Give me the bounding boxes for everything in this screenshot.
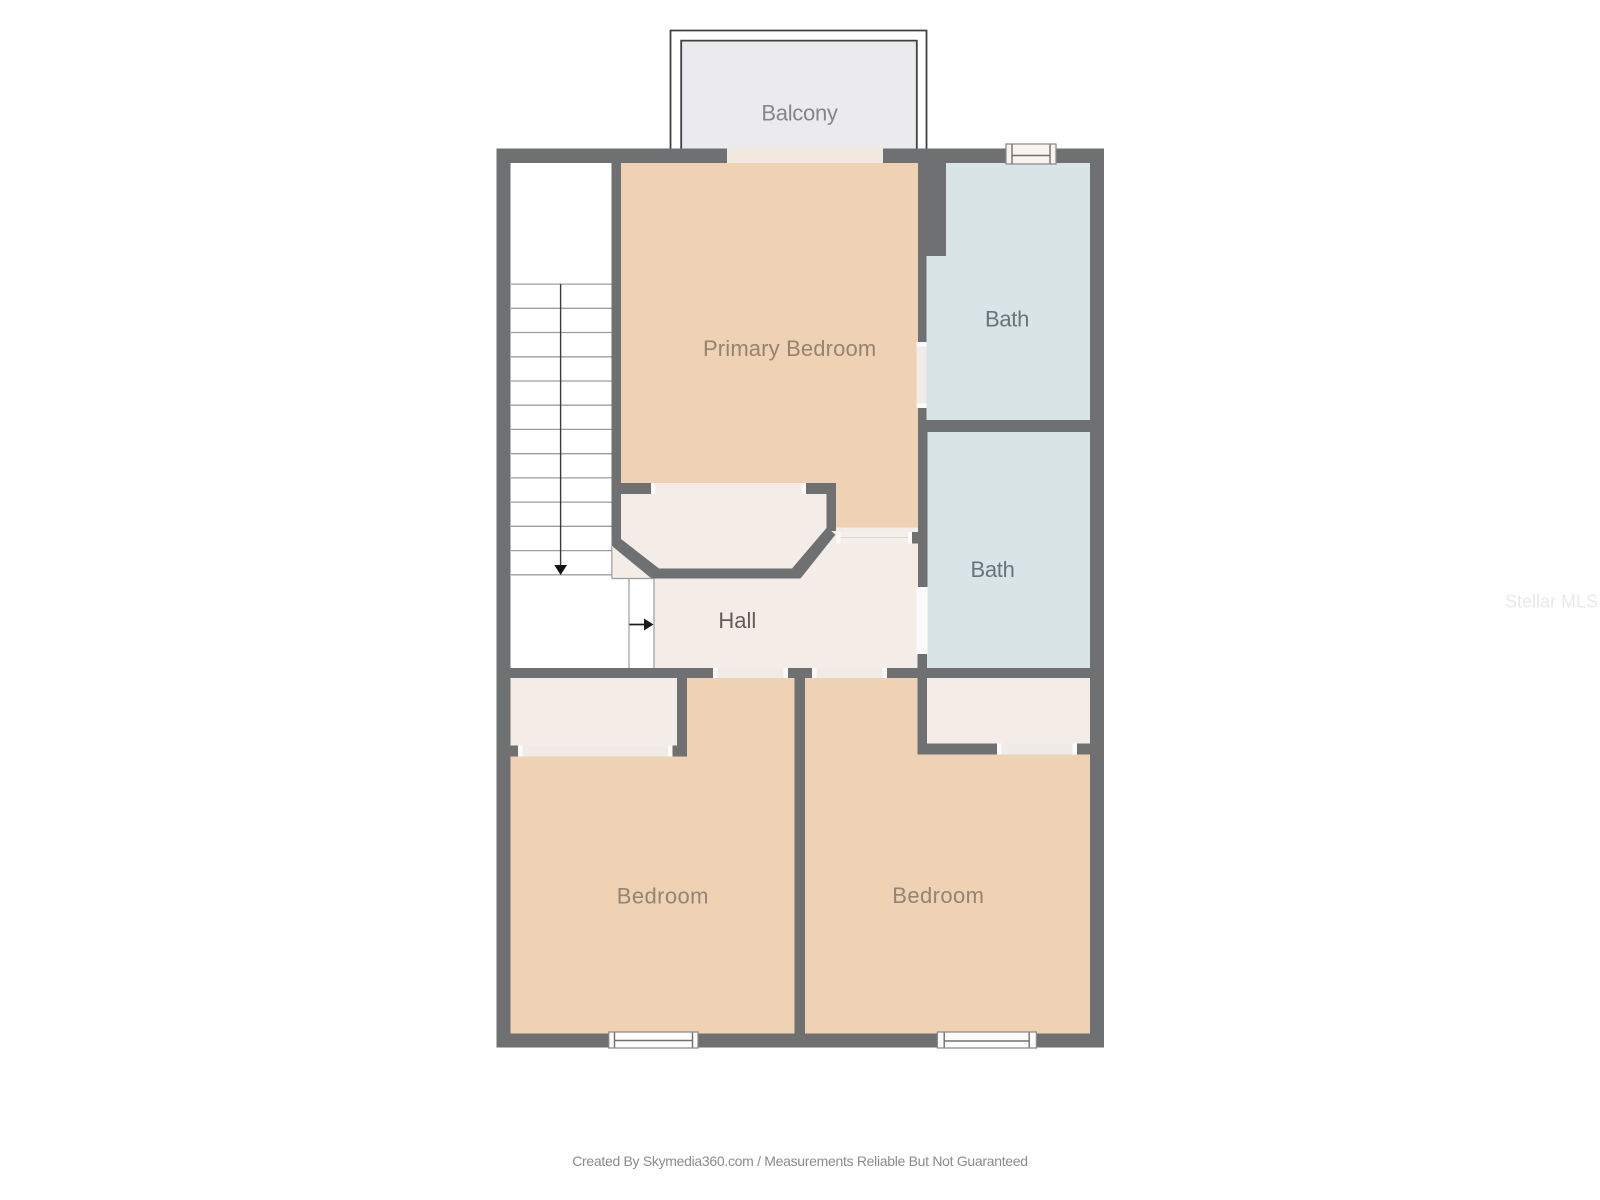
svg-text:Hall: Hall [718, 608, 756, 633]
svg-text:Bath: Bath [985, 306, 1029, 331]
svg-text:Bath: Bath [970, 557, 1014, 582]
svg-text:Bedroom: Bedroom [892, 883, 984, 908]
svg-text:Balcony: Balcony [761, 100, 837, 125]
svg-text:Primary Bedroom: Primary Bedroom [703, 336, 876, 361]
svg-text:Created By Skymedia360.com / M: Created By Skymedia360.com / Measurement… [572, 1153, 1028, 1169]
svg-text:Bedroom: Bedroom [617, 884, 709, 909]
svg-text:Stellar MLS: Stellar MLS [1505, 592, 1598, 612]
